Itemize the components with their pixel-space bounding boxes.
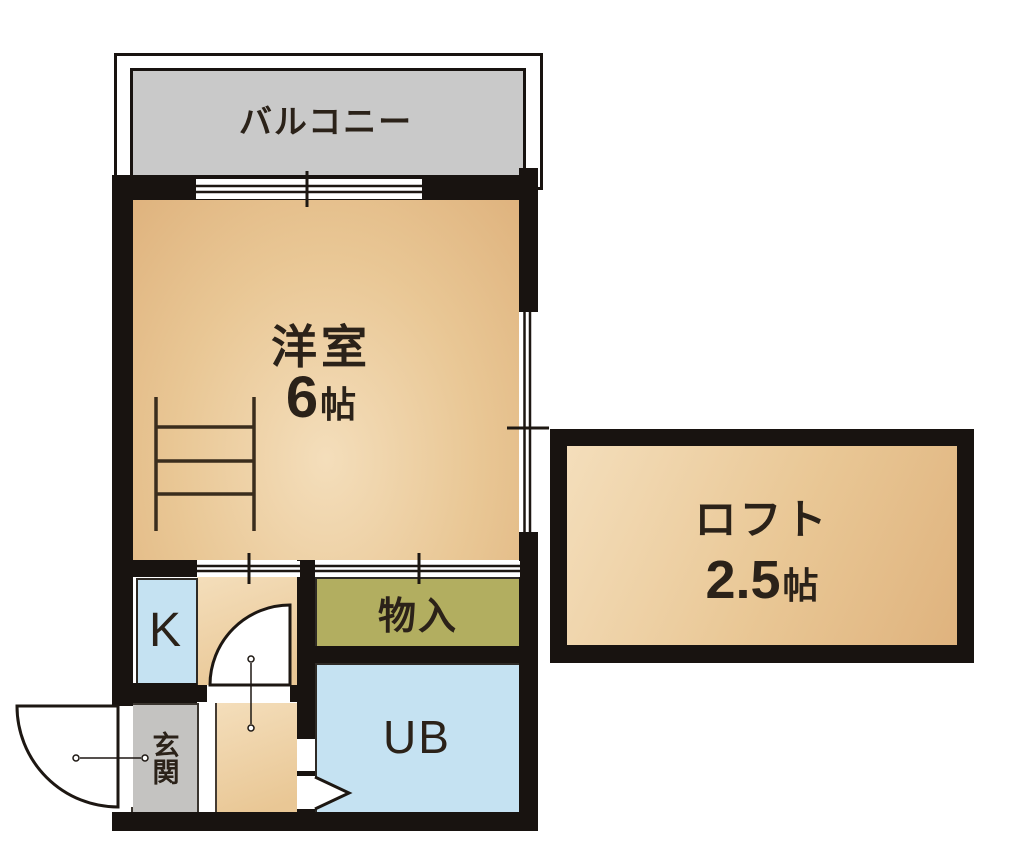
western-room-label: 洋室 xyxy=(221,318,421,370)
entrance-door-icon xyxy=(17,706,148,807)
loft-size-unit: 帖 xyxy=(783,557,819,609)
loft-size: 2.5帖 xyxy=(662,550,862,610)
unit-bath-label: UB xyxy=(317,709,517,765)
western-room-size-unit: 帖 xyxy=(320,376,356,428)
entrance-label: 玄関 xyxy=(147,712,181,804)
loft-size-value: 2.5 xyxy=(705,549,780,611)
side-window-icon xyxy=(507,312,549,532)
balcony-window-icon xyxy=(196,171,422,207)
kitchen-label: K xyxy=(136,600,194,660)
balcony-label: バルコニー xyxy=(176,98,476,140)
room-sliding-door-icon xyxy=(197,553,300,584)
loft-label: ロフト xyxy=(662,492,862,540)
bath-folding-door-icon xyxy=(315,777,349,809)
storage-label: 物入 xyxy=(318,589,518,635)
floor-plan: バルコニー 洋室 6帖 ロフト 2.5帖 K 物入 UB 玄関 xyxy=(0,0,1024,864)
room-door-icon xyxy=(210,605,290,731)
western-room-size: 6帖 xyxy=(221,366,421,428)
western-room-size-value: 6 xyxy=(286,364,318,431)
storage-sliding-door-icon xyxy=(315,553,520,584)
